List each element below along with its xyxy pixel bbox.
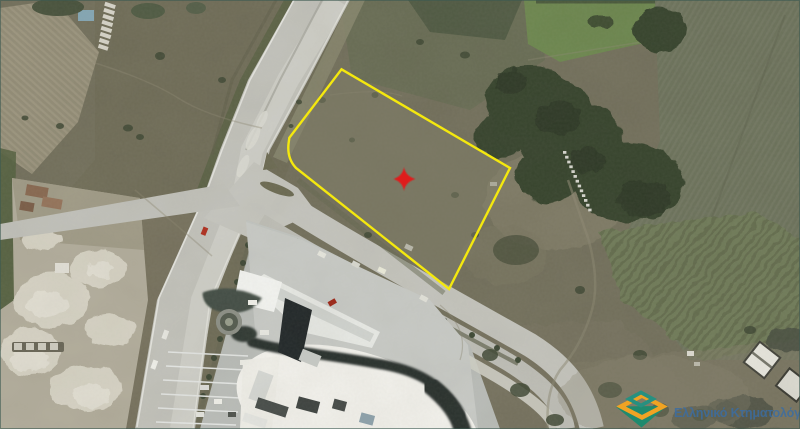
svg-text:Ελληνικό Κτηματολόγιο: Ελληνικό Κτηματολόγιο — [674, 406, 800, 420]
